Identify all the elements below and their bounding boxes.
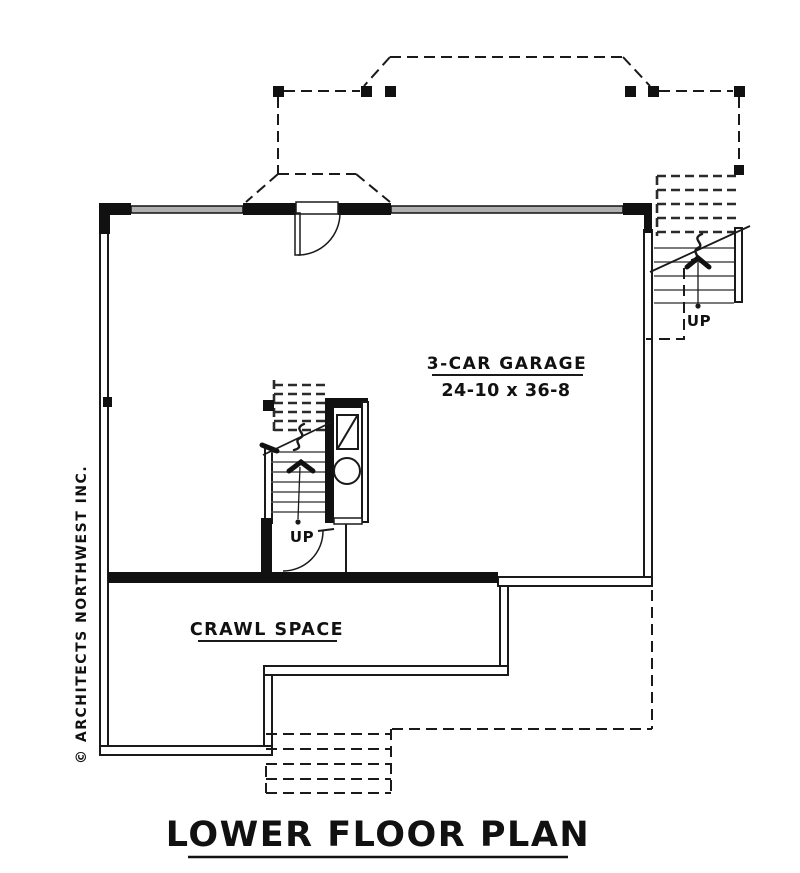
- up-arrow-icon: [289, 462, 313, 471]
- up-label-exterior: UP: [687, 312, 711, 330]
- porch-posts: [273, 86, 745, 175]
- garage-dimensions: 24-10 x 36-8: [441, 381, 570, 401]
- floor-plan-sheet: 3-CAR GARAGE 24-10 x 36-8 CRAWL SPACE UP…: [0, 0, 800, 873]
- exterior-steps-dashed: [266, 729, 391, 793]
- roof-outline-dashed: [246, 57, 739, 202]
- exterior-stair-dashed-treads: [657, 176, 738, 236]
- entry-door: [295, 202, 340, 255]
- foundation-walls: [100, 230, 652, 755]
- up-arrow-origin-dot: [295, 519, 300, 524]
- stair-rail: [735, 228, 742, 302]
- garage-label: 3-CAR GARAGE: [427, 354, 587, 374]
- landing-door-leaf: [318, 529, 334, 531]
- exterior-stair-treads: [654, 248, 734, 303]
- utility-closet: [334, 402, 368, 572]
- up-arrow-origin-dot: [695, 303, 700, 308]
- stair-post: [263, 400, 274, 411]
- crawl-space-label: CRAWL SPACE: [190, 620, 344, 640]
- floor-plan-drawing: 3-CAR GARAGE 24-10 x 36-8 CRAWL SPACE UP…: [0, 0, 800, 873]
- architect-credit: © ARCHITECTS NORTHWEST INC.: [74, 465, 90, 764]
- entry-door-leaf: [295, 213, 300, 255]
- plan-title: LOWER FLOOR PLAN: [166, 815, 590, 855]
- water-heater-icon: [334, 458, 360, 484]
- entry-door-swing-arc: [298, 213, 340, 255]
- up-label-interior: UP: [290, 528, 314, 546]
